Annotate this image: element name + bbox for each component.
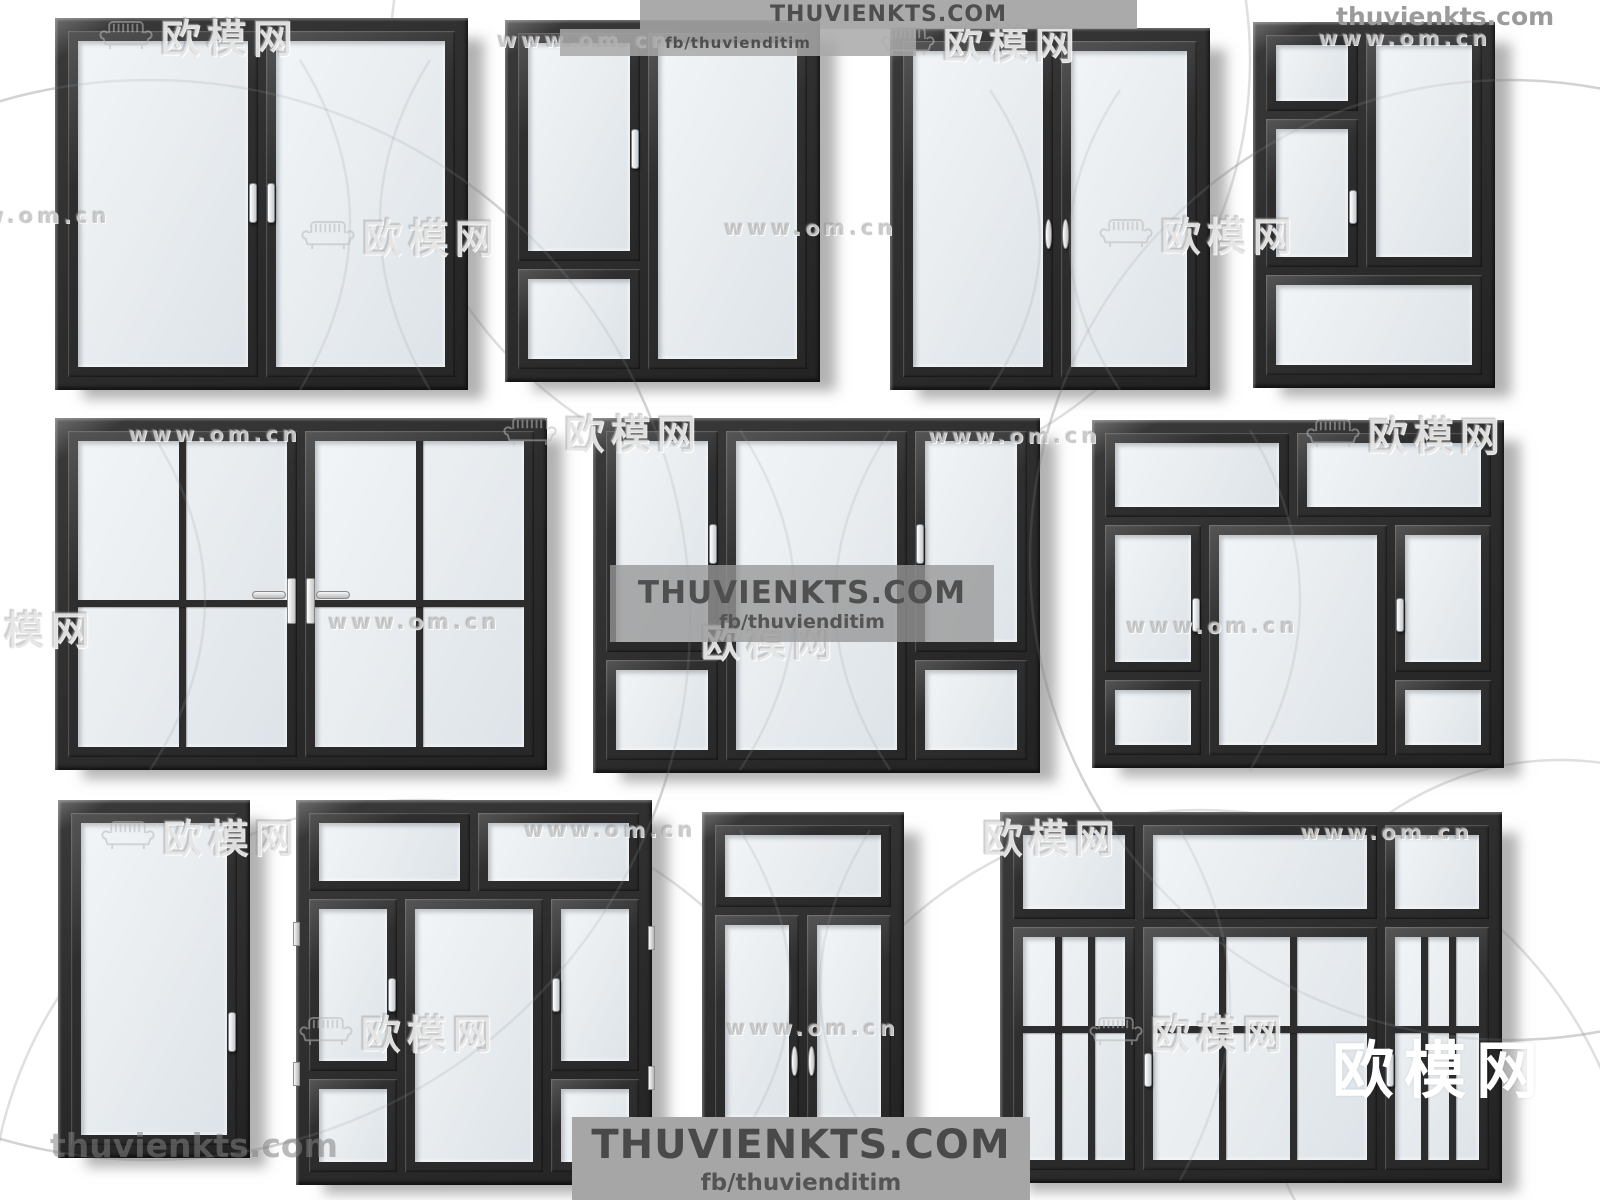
glass-pane [1405,535,1481,662]
fixed-sash [915,660,1027,760]
grille-bar [416,441,423,747]
grille-sash [1013,927,1135,1170]
glass-pane [913,51,1043,367]
window-3-double-casement [890,28,1210,390]
glass-pane [1276,129,1348,257]
fixed-sash [606,660,718,760]
window-handle [631,129,639,169]
sash-group [606,431,1027,760]
grille-sash [1385,927,1489,1170]
transom-sash [1385,825,1489,919]
window-handle [388,978,396,1012]
transom-row [309,813,639,891]
fixed-sash [309,1079,397,1172]
casement-sash [305,431,534,757]
hinge [648,926,655,950]
transom-sash [715,825,891,907]
left-column [1105,525,1201,755]
glass-pane [1023,937,1125,1160]
transom-row [1013,825,1489,919]
glass-pane [319,909,387,1061]
glass-pane [415,909,533,1162]
fixed-sash [648,33,807,369]
grille-bar [1023,1026,1125,1033]
main-section [1105,525,1491,755]
window-9-transom-three-column [296,800,652,1185]
window-handle [709,524,717,564]
window-1-double-casement [55,18,468,390]
sash-group [71,813,237,1145]
fixed-sash [1105,680,1201,755]
left-column [518,33,640,369]
window-5-grille-double-casement [55,418,547,770]
glass-pane [1395,937,1479,1160]
window-handle [249,183,257,223]
window-handle [1396,598,1404,632]
glass-pane [1153,835,1367,909]
grille-bar [1395,1026,1479,1033]
banner-subtitle: fb/thuvienditim [701,1170,902,1196]
window-handle-lever [252,591,286,599]
window-handle [287,578,296,624]
bottom-sash [1266,275,1482,375]
window-handle [1062,219,1069,249]
window-10-transom-double-casement [702,812,904,1140]
glass-pane [1405,690,1481,745]
right-column [915,431,1027,760]
glass-pane [1115,443,1279,507]
casement-sash [518,33,640,261]
left-column [606,431,718,760]
grille-sash [1143,927,1377,1170]
sash-group [68,431,534,757]
window-6-three-column-casement [593,418,1040,773]
window-handle [808,1046,815,1076]
window-handle [791,1046,798,1076]
sash-group [903,41,1197,377]
main-section [309,899,639,1172]
grille-bar [1290,937,1297,1160]
upper-section [1266,35,1482,267]
transom-sash [1105,433,1289,517]
window-4-grid-casement [1253,22,1495,388]
glass-pane [81,823,227,1135]
casement-sash [1105,525,1201,672]
glass-pane [528,279,630,359]
fixed-sash [726,431,907,760]
main-section [715,915,891,1127]
fixed-sash [1395,680,1491,755]
glass-pane [1276,45,1348,101]
hinge [648,1066,655,1090]
hinge [293,922,300,946]
casement-sash [71,813,237,1145]
grille-bar [1219,937,1226,1160]
casement-sash [266,31,456,377]
grille-bar [1153,1026,1367,1033]
window-handle-lever [316,591,350,599]
sash-group [68,31,455,377]
window-11-wide-grille-window [1000,812,1502,1183]
casement-sash [1266,119,1358,267]
glass-pane [616,670,708,750]
fixed-sash [1209,525,1387,755]
casement-sash [551,899,639,1071]
glass-pane [1395,835,1479,909]
glass-pane [725,925,789,1117]
casement-sash [309,899,397,1071]
sash-group [1266,35,1482,375]
window-handle [1144,1053,1152,1087]
transom-sash [1297,433,1491,517]
fixed-sash [518,269,640,369]
window-handle [552,978,560,1012]
glass-pane [78,41,248,367]
fixed-sash [1366,35,1482,267]
glass-pane [528,43,630,251]
window-handle [267,183,275,223]
glass-pane [319,1089,387,1162]
glass-pane [1071,51,1187,367]
window-handle [1192,598,1200,632]
casement-sash [903,41,1053,377]
glass-pane [1276,285,1472,365]
grille-bar [78,600,287,607]
window-handle [916,524,924,564]
sash-group [1013,825,1489,1170]
left-column [1266,35,1358,267]
sash-group [715,825,891,1127]
glass-pane [925,441,1017,642]
casement-sash [606,431,718,652]
transom-sash [1013,825,1135,919]
casement-sash [715,915,799,1127]
glass-pane [817,925,881,1117]
glass-pane [1307,443,1481,507]
window-handle [1045,219,1052,249]
transom-row [1105,433,1491,517]
window-handle [306,578,315,624]
window-handle [1386,1053,1394,1087]
casement-sash [68,431,297,757]
grille-bar [179,441,186,747]
glass-pane [276,41,446,367]
casement-sash [915,431,1027,652]
fixed-sash [1266,35,1358,111]
glass-pane [319,823,460,881]
hinge [293,1062,300,1086]
window-2-side-column-casement [505,20,820,382]
glass-pane [561,1089,629,1162]
glass-pane [616,441,708,642]
casement-sash [1395,525,1491,672]
right-column [1395,525,1491,755]
fixed-sash [405,899,543,1172]
sash-group [518,33,807,369]
window-handle [1349,190,1357,224]
render-sheet: { "scene": { "background_color": "#fffff… [0,0,1600,1200]
left-column [309,899,397,1172]
window-handle [228,1012,236,1052]
window-8-single-casement [58,800,250,1158]
glass-pane [925,670,1017,750]
glass-pane [1115,535,1191,662]
window-7-transom-grid-casement [1092,420,1504,768]
sash-group [1105,433,1491,755]
transom-sash [309,813,470,891]
grille-bar [1421,937,1428,1160]
glass-pane [658,43,797,359]
right-column [551,899,639,1172]
glass-pane [1376,45,1472,257]
grille-bar [1055,937,1062,1160]
glass-pane [488,823,629,881]
glass-pane [1023,835,1125,909]
glass-pane [736,441,897,750]
glass-pane [725,835,881,897]
glass-pane [1219,535,1377,745]
main-section [1013,927,1489,1170]
sash-group [309,813,639,1172]
glass-pane [1153,937,1367,1160]
transom-sash [478,813,639,891]
glass-pane [561,909,629,1061]
casement-sash [1061,41,1197,377]
glass-pane [1115,690,1191,745]
casement-sash [68,31,258,377]
casement-sash [807,915,891,1127]
grille-bar [1088,937,1095,1160]
grille-bar [315,600,524,607]
fixed-sash [551,1079,639,1172]
transom-sash [1143,825,1377,919]
grille-bar [1449,937,1456,1160]
